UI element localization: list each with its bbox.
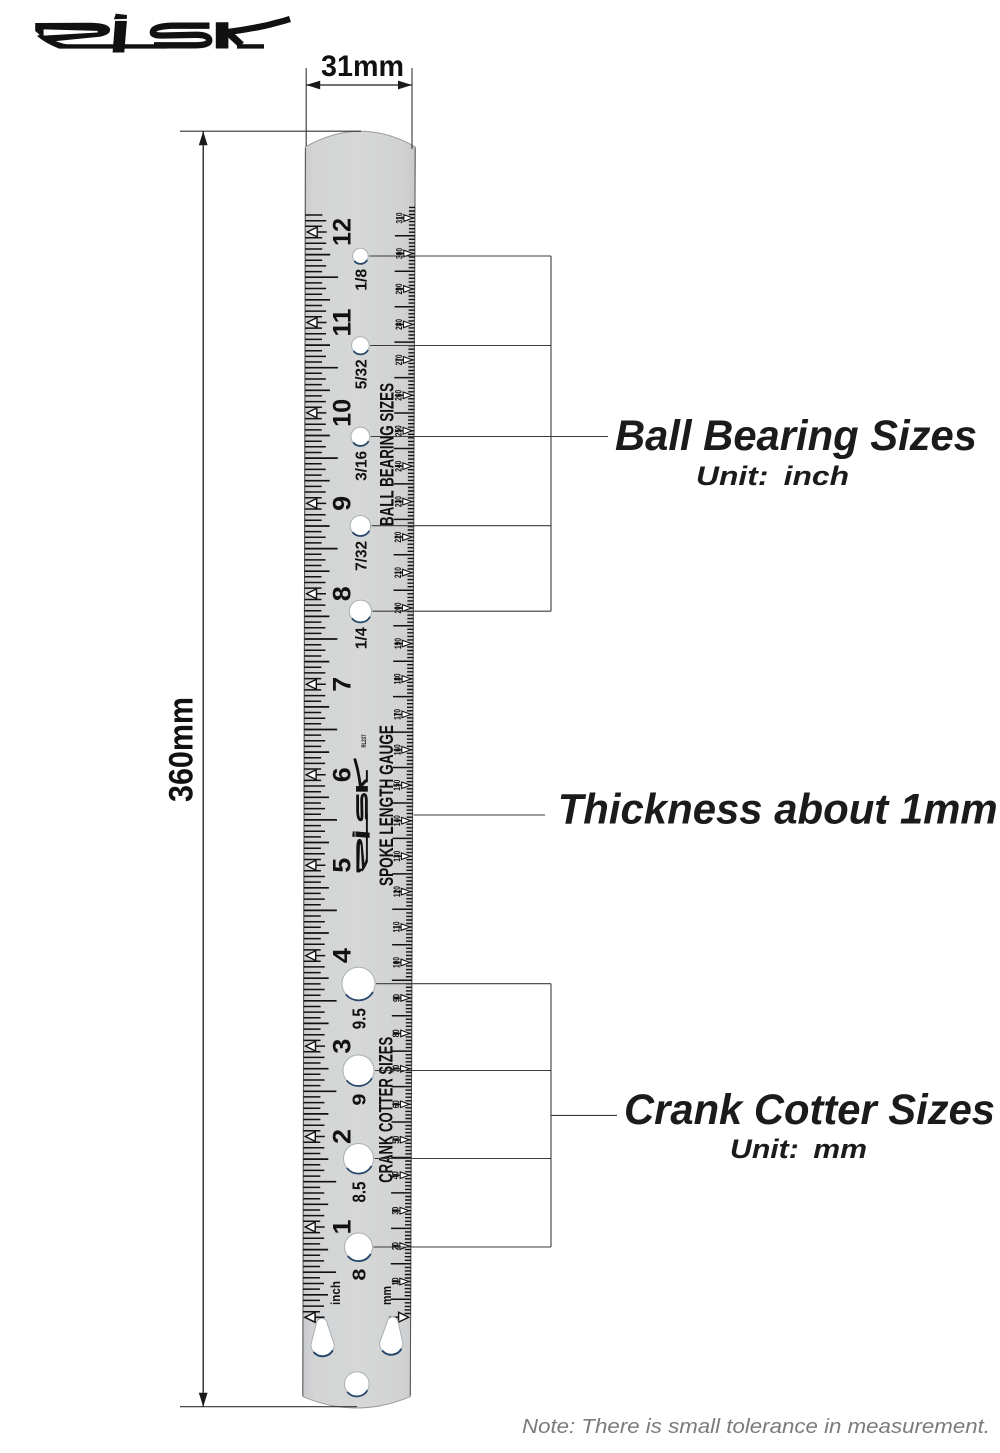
svg-text:31mm: 31mm — [321, 50, 404, 83]
svg-text:210: 210 — [393, 567, 403, 578]
svg-text:8: 8 — [329, 586, 357, 601]
svg-text:12: 12 — [329, 218, 357, 246]
svg-text:20: 20 — [390, 1242, 400, 1250]
svg-text:4: 4 — [329, 948, 357, 963]
svg-text:220: 220 — [393, 532, 403, 543]
svg-text:2: 2 — [329, 1129, 357, 1144]
svg-text:120: 120 — [392, 886, 402, 897]
svg-text:BALL BEARING SIZES: BALL BEARING SIZES — [378, 383, 399, 526]
svg-text:9.5: 9.5 — [350, 1008, 370, 1029]
svg-text:8: 8 — [350, 1269, 370, 1281]
svg-text:300: 300 — [394, 248, 404, 259]
svg-text:SPOKE LENGTH GAUGE: SPOKE LENGTH GAUGE — [377, 725, 398, 886]
svg-text:290: 290 — [394, 284, 404, 295]
svg-text:1: 1 — [329, 1219, 357, 1234]
svg-text:Thickness about 1mm: Thickness about 1mm — [558, 786, 998, 834]
svg-text:190: 190 — [393, 638, 403, 649]
svg-text:Crank Cotter Sizes: Crank Cotter Sizes — [624, 1086, 995, 1134]
svg-text:280: 280 — [394, 319, 404, 330]
svg-text:180: 180 — [393, 673, 403, 684]
svg-text:30: 30 — [391, 1207, 401, 1215]
svg-text:7/32: 7/32 — [353, 541, 370, 571]
svg-text:CRANK COTTER SIZES: CRANK COTTER SIZES — [377, 1037, 398, 1183]
svg-text:mm: mm — [379, 1286, 394, 1305]
svg-text:360mm: 360mm — [163, 697, 201, 802]
svg-text:10: 10 — [390, 1278, 400, 1286]
svg-text:9: 9 — [350, 1094, 370, 1106]
svg-text:170: 170 — [393, 709, 403, 720]
svg-text:7: 7 — [329, 677, 357, 692]
svg-text:Unit: inch: Unit: inch — [696, 461, 849, 491]
svg-text:270: 270 — [394, 354, 404, 365]
svg-text:200: 200 — [393, 603, 403, 614]
svg-text:1/8: 1/8 — [353, 269, 370, 291]
svg-text:110: 110 — [392, 922, 402, 933]
svg-text:Ball Bearing Sizes: Ball Bearing Sizes — [615, 412, 977, 460]
svg-text:8.5: 8.5 — [350, 1182, 370, 1203]
svg-text:90: 90 — [391, 994, 401, 1002]
svg-text:6: 6 — [329, 767, 357, 782]
svg-text:1/4: 1/4 — [353, 627, 370, 649]
svg-text:5: 5 — [329, 858, 357, 873]
svg-text:3: 3 — [329, 1039, 357, 1054]
svg-text:80: 80 — [391, 1029, 401, 1037]
svg-text:100: 100 — [392, 957, 402, 968]
svg-text:Note: There is small tolerance: Note: There is small tolerance in measur… — [522, 1416, 990, 1438]
svg-text:RL237: RL237 — [362, 734, 368, 747]
svg-text:5/32: 5/32 — [353, 359, 370, 389]
svg-text:11: 11 — [329, 308, 357, 336]
svg-text:inch: inch — [328, 1281, 343, 1305]
svg-text:3/16: 3/16 — [353, 451, 370, 481]
svg-text:Unit: mm: Unit: mm — [730, 1134, 867, 1164]
svg-text:10: 10 — [329, 399, 357, 427]
svg-text:310: 310 — [394, 213, 404, 224]
svg-text:9: 9 — [329, 496, 357, 511]
